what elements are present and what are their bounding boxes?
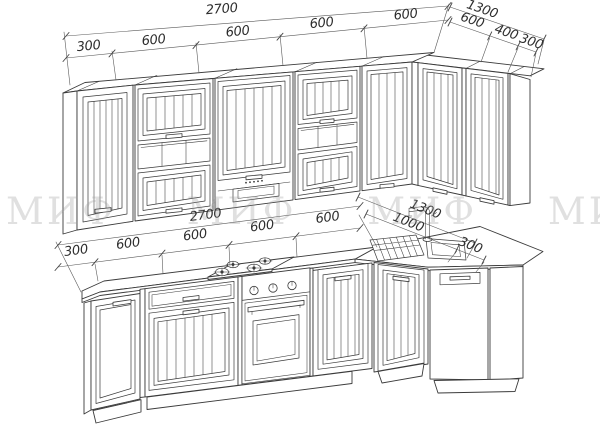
upper-corner-cabinet [362, 62, 412, 191]
dim-label: 300 [517, 31, 545, 53]
dim-label: 600 [309, 15, 334, 32]
dim-label: 600 [315, 209, 341, 227]
dim-label: 600 [249, 218, 275, 236]
upper-hood-cabinet [215, 72, 293, 210]
upper-right-end-panel [510, 74, 530, 206]
base-cabinet-door [310, 263, 372, 376]
plinth [434, 379, 519, 393]
dim-label: 300 [76, 38, 101, 55]
oven-unit [238, 268, 310, 386]
dim-label: 600 [182, 227, 208, 245]
upper-cabinet-shelf-1 [135, 79, 213, 222]
upper-cabinets [63, 53, 544, 235]
kitchen-drawing: 2700 300 600 600 600 600 1300 600 400 30… [0, 0, 600, 424]
dim-label: 600 [115, 235, 141, 253]
dim-upper-overall-left: 2700 [205, 1, 238, 18]
dim-label: 600 [393, 6, 418, 23]
upper-right-run [412, 62, 530, 206]
dim-label: 600 [225, 23, 250, 40]
corner-sink-cabinet [374, 263, 523, 394]
base-right-end-panel [490, 267, 523, 381]
dim-base-overall-left: 2700 [189, 206, 223, 225]
dim-label: 300 [63, 242, 89, 260]
oven-door [242, 292, 310, 384]
dim-label: 600 [141, 32, 166, 49]
dim-label: 400 [492, 22, 520, 44]
upper-end-cabinet [63, 85, 133, 234]
blueprint-canvas: 2700 300 600 600 600 600 1300 600 400 30… [0, 0, 600, 424]
upper-cabinet-shelf-2 [295, 66, 360, 199]
base-cabinet-drawer-door [140, 277, 238, 398]
base-end-cabinet [84, 294, 141, 424]
